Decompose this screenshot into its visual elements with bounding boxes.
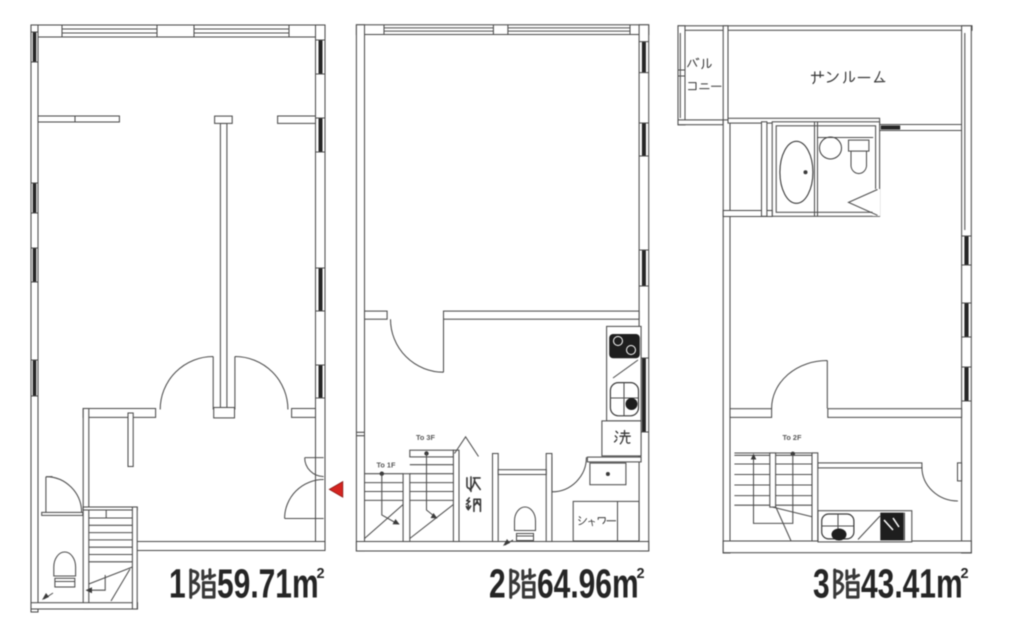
svg-text:59.71m: 59.71m <box>217 561 319 606</box>
svg-text:2: 2 <box>637 566 645 582</box>
svg-text:3: 3 <box>813 561 830 606</box>
svg-text:To 1F: To 1F <box>377 461 396 470</box>
svg-text:2: 2 <box>961 566 969 582</box>
svg-text:To 3F: To 3F <box>416 433 435 442</box>
svg-text:64.96m: 64.96m <box>537 561 639 606</box>
svg-text:2: 2 <box>489 561 506 606</box>
svg-text:To 2F: To 2F <box>783 433 802 442</box>
svg-text:43.41m: 43.41m <box>861 561 963 606</box>
svg-text:1: 1 <box>169 561 186 606</box>
svg-text:2: 2 <box>317 566 325 582</box>
